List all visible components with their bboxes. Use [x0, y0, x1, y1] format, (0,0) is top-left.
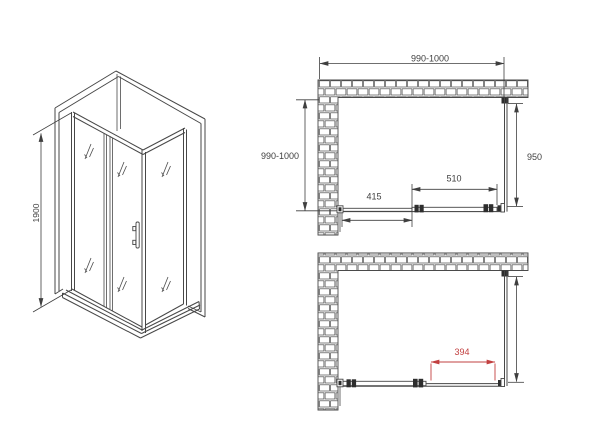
corner-bracket: [498, 204, 505, 213]
shower-enclosure-drawing: 1900 990-1000 990-1000 950: [0, 0, 600, 424]
side-glass-panel: [502, 98, 509, 212]
glass-sparkle-icon: [85, 258, 94, 273]
shower-tray: [63, 289, 201, 338]
height-dimension: 1900: [31, 113, 71, 312]
side-panel-dimension-unlabeled: [508, 277, 524, 383]
side-glass-panel: [502, 271, 509, 387]
opening-dimension: 394: [431, 347, 495, 381]
side-panel-dimension-label: 950: [527, 152, 542, 162]
door-assembly: [337, 204, 505, 233]
glass-sparkle-icon: [85, 144, 94, 159]
glass-sparkle-icon: [118, 162, 127, 177]
door-assembly-open: [337, 379, 505, 407]
technical-drawing-page: 1900 990-1000 990-1000 950: [0, 0, 600, 424]
corner-bracket: [498, 379, 505, 387]
glass-sparkle-icons: [85, 144, 171, 292]
isometric-view: 1900: [31, 71, 205, 338]
width-dimension-label: 990-1000: [411, 54, 449, 64]
opening-dimension-label: 394: [454, 347, 469, 357]
plan-view-closed: 990-1000 990-1000 950: [261, 54, 542, 236]
sliding-door-dimension: 510: [412, 174, 497, 228]
shower-enclosure-frame: [63, 112, 201, 338]
glass-sparkle-icon: [118, 277, 127, 292]
wall-outline: [55, 71, 205, 317]
glass-sparkle-icon: [162, 162, 171, 177]
door-handle: [133, 222, 139, 248]
fixed-panel-dimension-label: 415: [366, 192, 381, 202]
side-panel-dimension: 950: [507, 104, 542, 207]
depth-dimension-label: 990-1000: [261, 151, 299, 161]
height-dimension-label: 1900: [31, 203, 41, 222]
sliding-door-dimension-label: 510: [446, 174, 461, 184]
glass-sparkle-icon: [162, 277, 171, 292]
plan-view-open: 394: [318, 253, 528, 410]
